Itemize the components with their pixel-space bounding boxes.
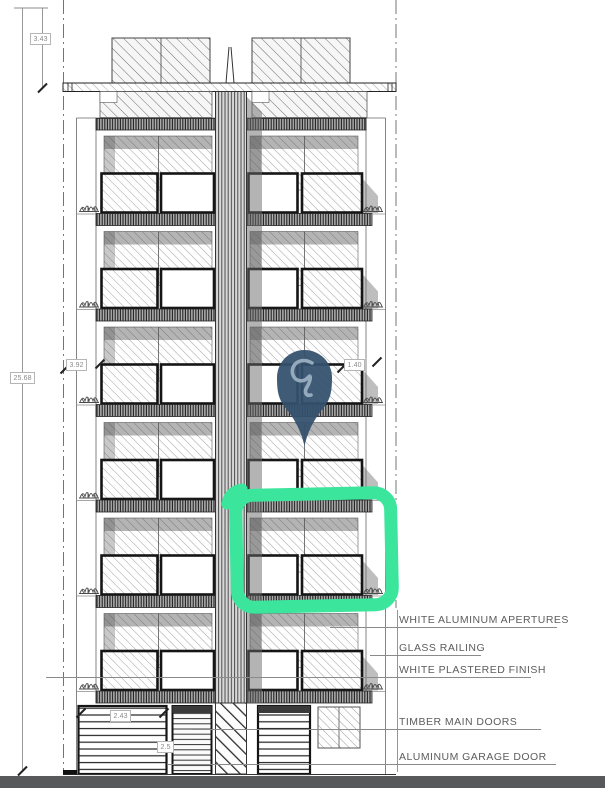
dim-total-height: 25.68 — [10, 372, 35, 384]
roof-flue — [226, 47, 229, 83]
elevation-screenshot: 3.43 25.68 3.92 1.40 2.43 2.5 WHITE ALUM… — [0, 0, 605, 790]
timber-door — [173, 706, 212, 774]
dim-garage-width: 2.43 — [110, 710, 131, 722]
dim-level-right: 1.40 — [344, 359, 365, 371]
dim-roof-height: 3.43 — [30, 33, 51, 45]
label-aluminum-apertures: WHITE ALUMINUM APERTURES — [399, 614, 569, 626]
label-garage-door: ALUMINUM GARAGE DOOR — [399, 751, 547, 763]
dim-garage-height: 2.5 — [157, 741, 174, 753]
label-timber-doors: TIMBER MAIN DOORS — [399, 716, 517, 728]
label-glass-railing: GLASS RAILING — [399, 642, 485, 654]
dimension-lines — [14, 8, 48, 772]
label-plastered-finish: WHITE PLASTERED FINISH — [399, 664, 546, 676]
dim-level-left: 3.92 — [66, 359, 87, 371]
garage-door-right — [258, 706, 310, 774]
roof-slab — [63, 83, 396, 92]
ground-pier — [216, 703, 247, 774]
core-shaft — [216, 92, 247, 704]
bottom-bar — [0, 776, 605, 788]
